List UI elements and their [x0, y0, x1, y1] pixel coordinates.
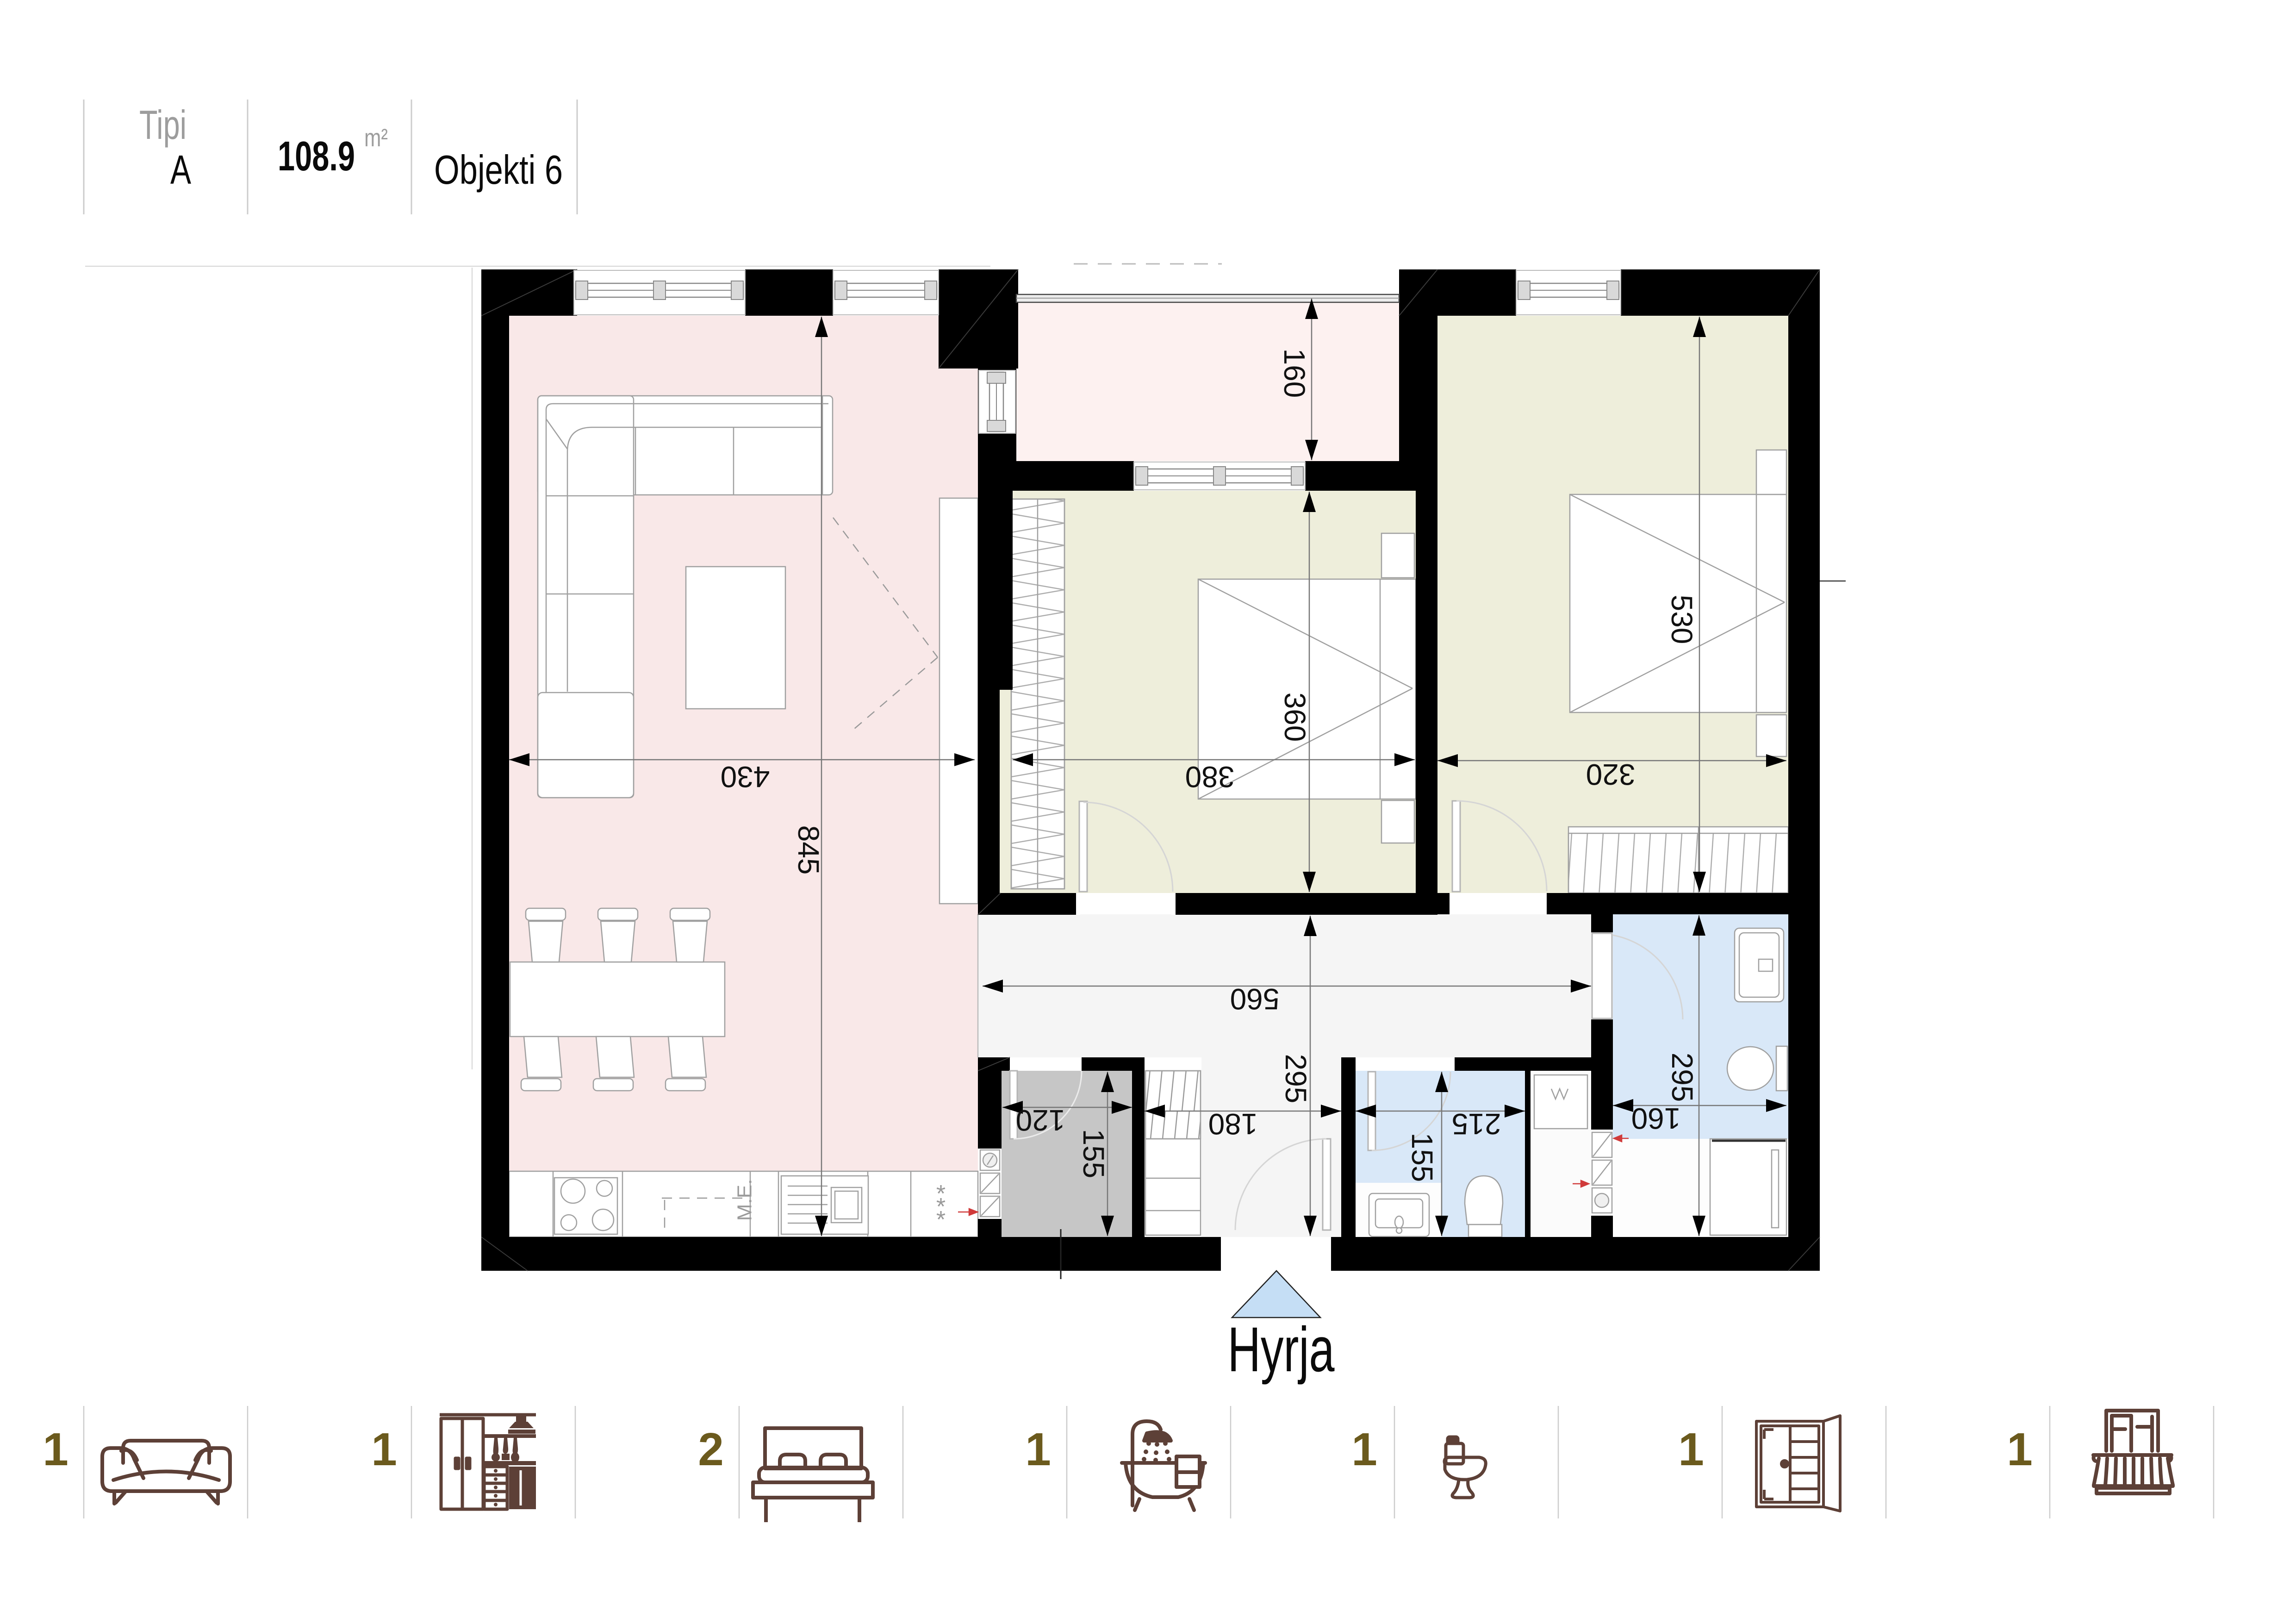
svg-text:155: 155	[1077, 1129, 1110, 1179]
svg-text:1: 1	[1025, 1424, 1051, 1475]
svg-text:Objekti 6: Objekti 6	[434, 147, 563, 193]
svg-text:560: 560	[1230, 982, 1280, 1016]
svg-text:215: 215	[1452, 1107, 1501, 1141]
svg-text:1: 1	[1351, 1424, 1377, 1475]
svg-text:120: 120	[1016, 1104, 1065, 1137]
svg-text:295: 295	[1279, 1054, 1313, 1104]
svg-text:1: 1	[1678, 1424, 1704, 1475]
svg-text:155: 155	[1406, 1133, 1439, 1182]
svg-text:A: A	[170, 147, 191, 193]
svg-text:160: 160	[1631, 1102, 1681, 1135]
svg-text:1: 1	[371, 1424, 397, 1475]
svg-text:1: 1	[2007, 1424, 2033, 1475]
svg-text:845: 845	[792, 825, 825, 875]
svg-text:320: 320	[1586, 758, 1636, 791]
svg-text:160: 160	[1278, 349, 1311, 398]
svg-text:m²: m²	[364, 124, 388, 152]
svg-text:2: 2	[698, 1424, 724, 1475]
svg-text:180: 180	[1208, 1107, 1258, 1141]
svg-text:530: 530	[1665, 595, 1699, 644]
svg-text:430: 430	[721, 760, 770, 793]
svg-text:360: 360	[1278, 693, 1312, 742]
svg-text:*: *	[936, 1206, 946, 1233]
svg-text:M.E.: M.E.	[733, 1179, 756, 1221]
svg-text:Hyrja: Hyrja	[1228, 1314, 1335, 1385]
svg-text:1: 1	[43, 1424, 68, 1475]
svg-text:Tipi: Tipi	[139, 102, 187, 148]
svg-text:380: 380	[1185, 760, 1235, 793]
svg-text:108.9: 108.9	[278, 133, 355, 180]
svg-text:295: 295	[1666, 1053, 1699, 1102]
